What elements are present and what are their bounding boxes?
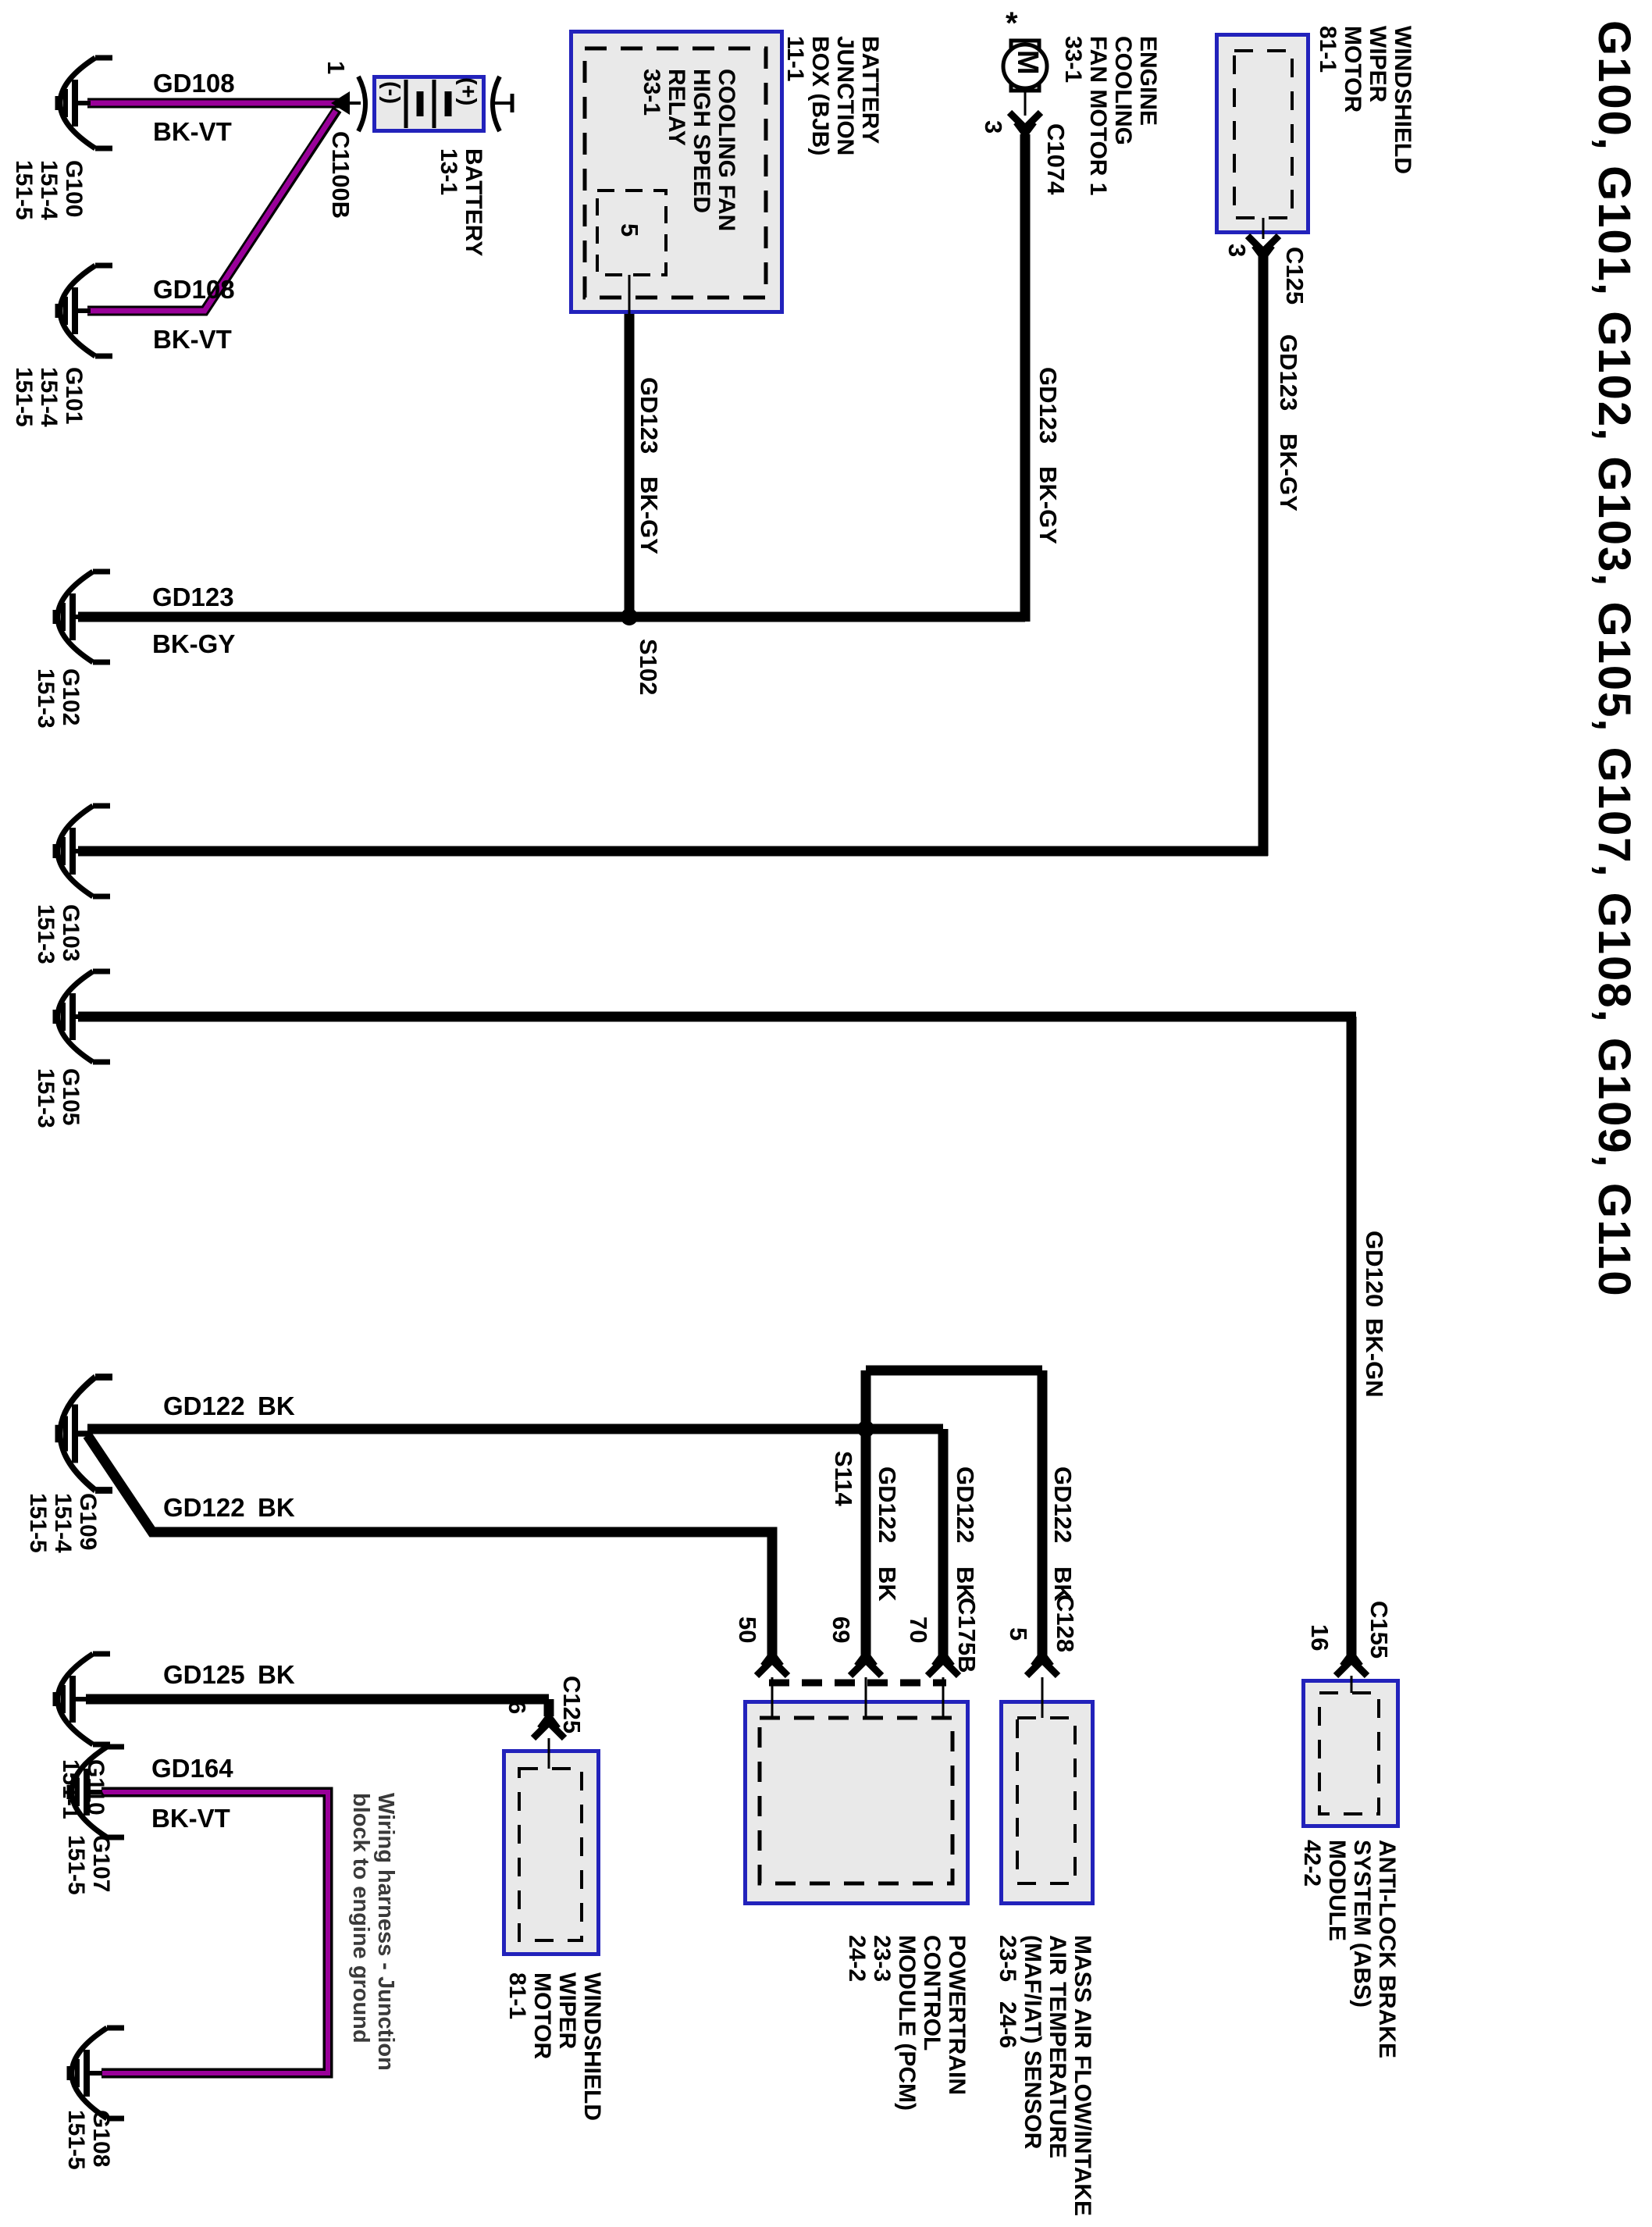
wire-label-gd122-pin69: GD122: [873, 1466, 901, 1543]
engine-cooling-fan-motor-label: ENGINECOOLINGFAN MOTOR 133-1: [1060, 36, 1160, 195]
wire-color-bkgy-bjb: BK-GY: [635, 476, 663, 554]
windshield-wiper-motor-bottom-label: WINDSHIELDWIPERMOTOR81-1: [504, 1972, 604, 2121]
wire-label-gd122-pin5: GD122: [1049, 1466, 1077, 1543]
splice-label-s114: S114: [829, 1451, 857, 1506]
splice-label-s102: S102: [634, 639, 662, 695]
wire-label-gd108-g101: GD108: [153, 275, 235, 305]
ground-label-g102: G102151-3: [33, 668, 83, 729]
wire-color-bkgy-g102: BK-GY: [152, 629, 235, 659]
wire-label-gd122-row1: GD122: [163, 1391, 245, 1421]
connector-label-c125-bottom: C125: [557, 1676, 586, 1733]
pin-label-maf-5: 5: [1004, 1627, 1032, 1641]
battery-positive-terminal: (+): [454, 77, 480, 105]
wire-color-bkgy-wiper: BK-GY: [1274, 433, 1302, 511]
pin-label-pcm-69: 69: [827, 1616, 855, 1643]
wire-label-gd123-fan: GD123: [1034, 367, 1062, 444]
ground-label-g103: G103151-3: [33, 904, 83, 964]
wire-label-gd108-g100: GD108: [153, 69, 235, 98]
wire-label-gd123-bjb: GD123: [635, 377, 663, 454]
pin-label-wiper-bottom-6: 6: [503, 1701, 531, 1714]
wire-color-bkgy-fan: BK-GY: [1034, 466, 1062, 544]
wire-color-bk-gd125: BK: [258, 1660, 295, 1690]
wire-label-gd120: GD120: [1360, 1231, 1388, 1307]
ground-label-g109: G109151-4151-5: [25, 1493, 100, 1553]
battery-label: BATTERY13-1: [436, 148, 486, 256]
ground-label-g105: G105151-3: [33, 1068, 83, 1128]
wire-label-gd164: GD164: [151, 1754, 233, 1783]
connector-label-c175b: C175B: [952, 1598, 981, 1673]
ground-label-g101: G101151-4151-5: [11, 367, 86, 427]
pin-label-fan-3: 3: [979, 120, 1007, 134]
wire-color-bkvt-g101: BK-VT: [153, 325, 232, 355]
wire-color-bk-pin70: BK: [951, 1566, 979, 1602]
ground-label-g107: G107151-5: [63, 1835, 113, 1895]
motor-m-symbol: M: [1010, 50, 1044, 75]
wire-label-gd123-g102: GD123: [152, 583, 234, 612]
battery-negative-terminal: (-): [378, 81, 404, 104]
connector-label-c1100b: C1100B: [326, 131, 354, 219]
wire-label-gd125: GD125: [163, 1660, 245, 1690]
wire-color-bk-row1: BK: [258, 1391, 295, 1421]
connector-label-c125-top: C125: [1280, 247, 1308, 305]
pin-label-wiper-top-3: 3: [1223, 244, 1251, 257]
wire-geometry-layer: [0, 0, 1652, 2227]
pcm-label: POWERTRAINCONTROLMODULE (PCM)23-324-2: [844, 1935, 969, 2111]
wire-label-gd122-row2: GD122: [163, 1493, 245, 1523]
wire-color-bkgn: BK-GN: [1360, 1318, 1388, 1398]
pin-label-battery-1: 1: [322, 61, 350, 74]
connector-label-c155: C155: [1365, 1601, 1393, 1659]
pin-label-pcm-70: 70: [904, 1616, 932, 1643]
cooling-fan-relay-label: COOLING FANHIGH SPEEDRELAY33-1: [639, 69, 739, 231]
wire-color-bkvt-gd164: BK-VT: [151, 1804, 230, 1833]
wire-color-bk-pin69: BK: [873, 1566, 901, 1602]
wire-color-bk-row2: BK: [258, 1493, 295, 1523]
maf-sensor-label: MASS AIR FLOW/INTAKEAIR TEMPERATURE(MAF/…: [995, 1935, 1095, 2216]
wiring-diagram-page: G100, G101, G102, G103, G105, G107, G108…: [0, 0, 1652, 2227]
ground-label-g110: G110151-1: [58, 1759, 108, 1819]
pin-label-pcm-50: 50: [733, 1616, 761, 1643]
connector-label-c128: C128: [1051, 1595, 1079, 1652]
harness-note: Wiring harness - Junctionblock to engine…: [348, 1793, 398, 2071]
wire-label-gd122-pin70: GD122: [951, 1466, 979, 1543]
footnote-asterisk: *: [1006, 6, 1018, 41]
ground-label-g108: G108151-5: [63, 2110, 113, 2170]
ground-label-g100: G100151-4151-5: [11, 160, 86, 220]
pin-label-abs-16: 16: [1305, 1624, 1333, 1651]
wire-label-gd123-wiper: GD123: [1274, 334, 1302, 411]
wire-color-bkvt-g100: BK-VT: [153, 117, 232, 147]
bjb-label: BATTERYJUNCTIONBOX (BJB)11-1: [782, 36, 882, 155]
windshield-wiper-motor-top-label: WINDSHIELDWIPERMOTOR81-1: [1315, 26, 1415, 174]
page-title: G100, G101, G102, G103, G105, G107, G108…: [1588, 20, 1640, 1298]
abs-module-label: ANTI-LOCK BRAKESYSTEM (ABS)MODULE42-2: [1299, 1840, 1399, 2058]
